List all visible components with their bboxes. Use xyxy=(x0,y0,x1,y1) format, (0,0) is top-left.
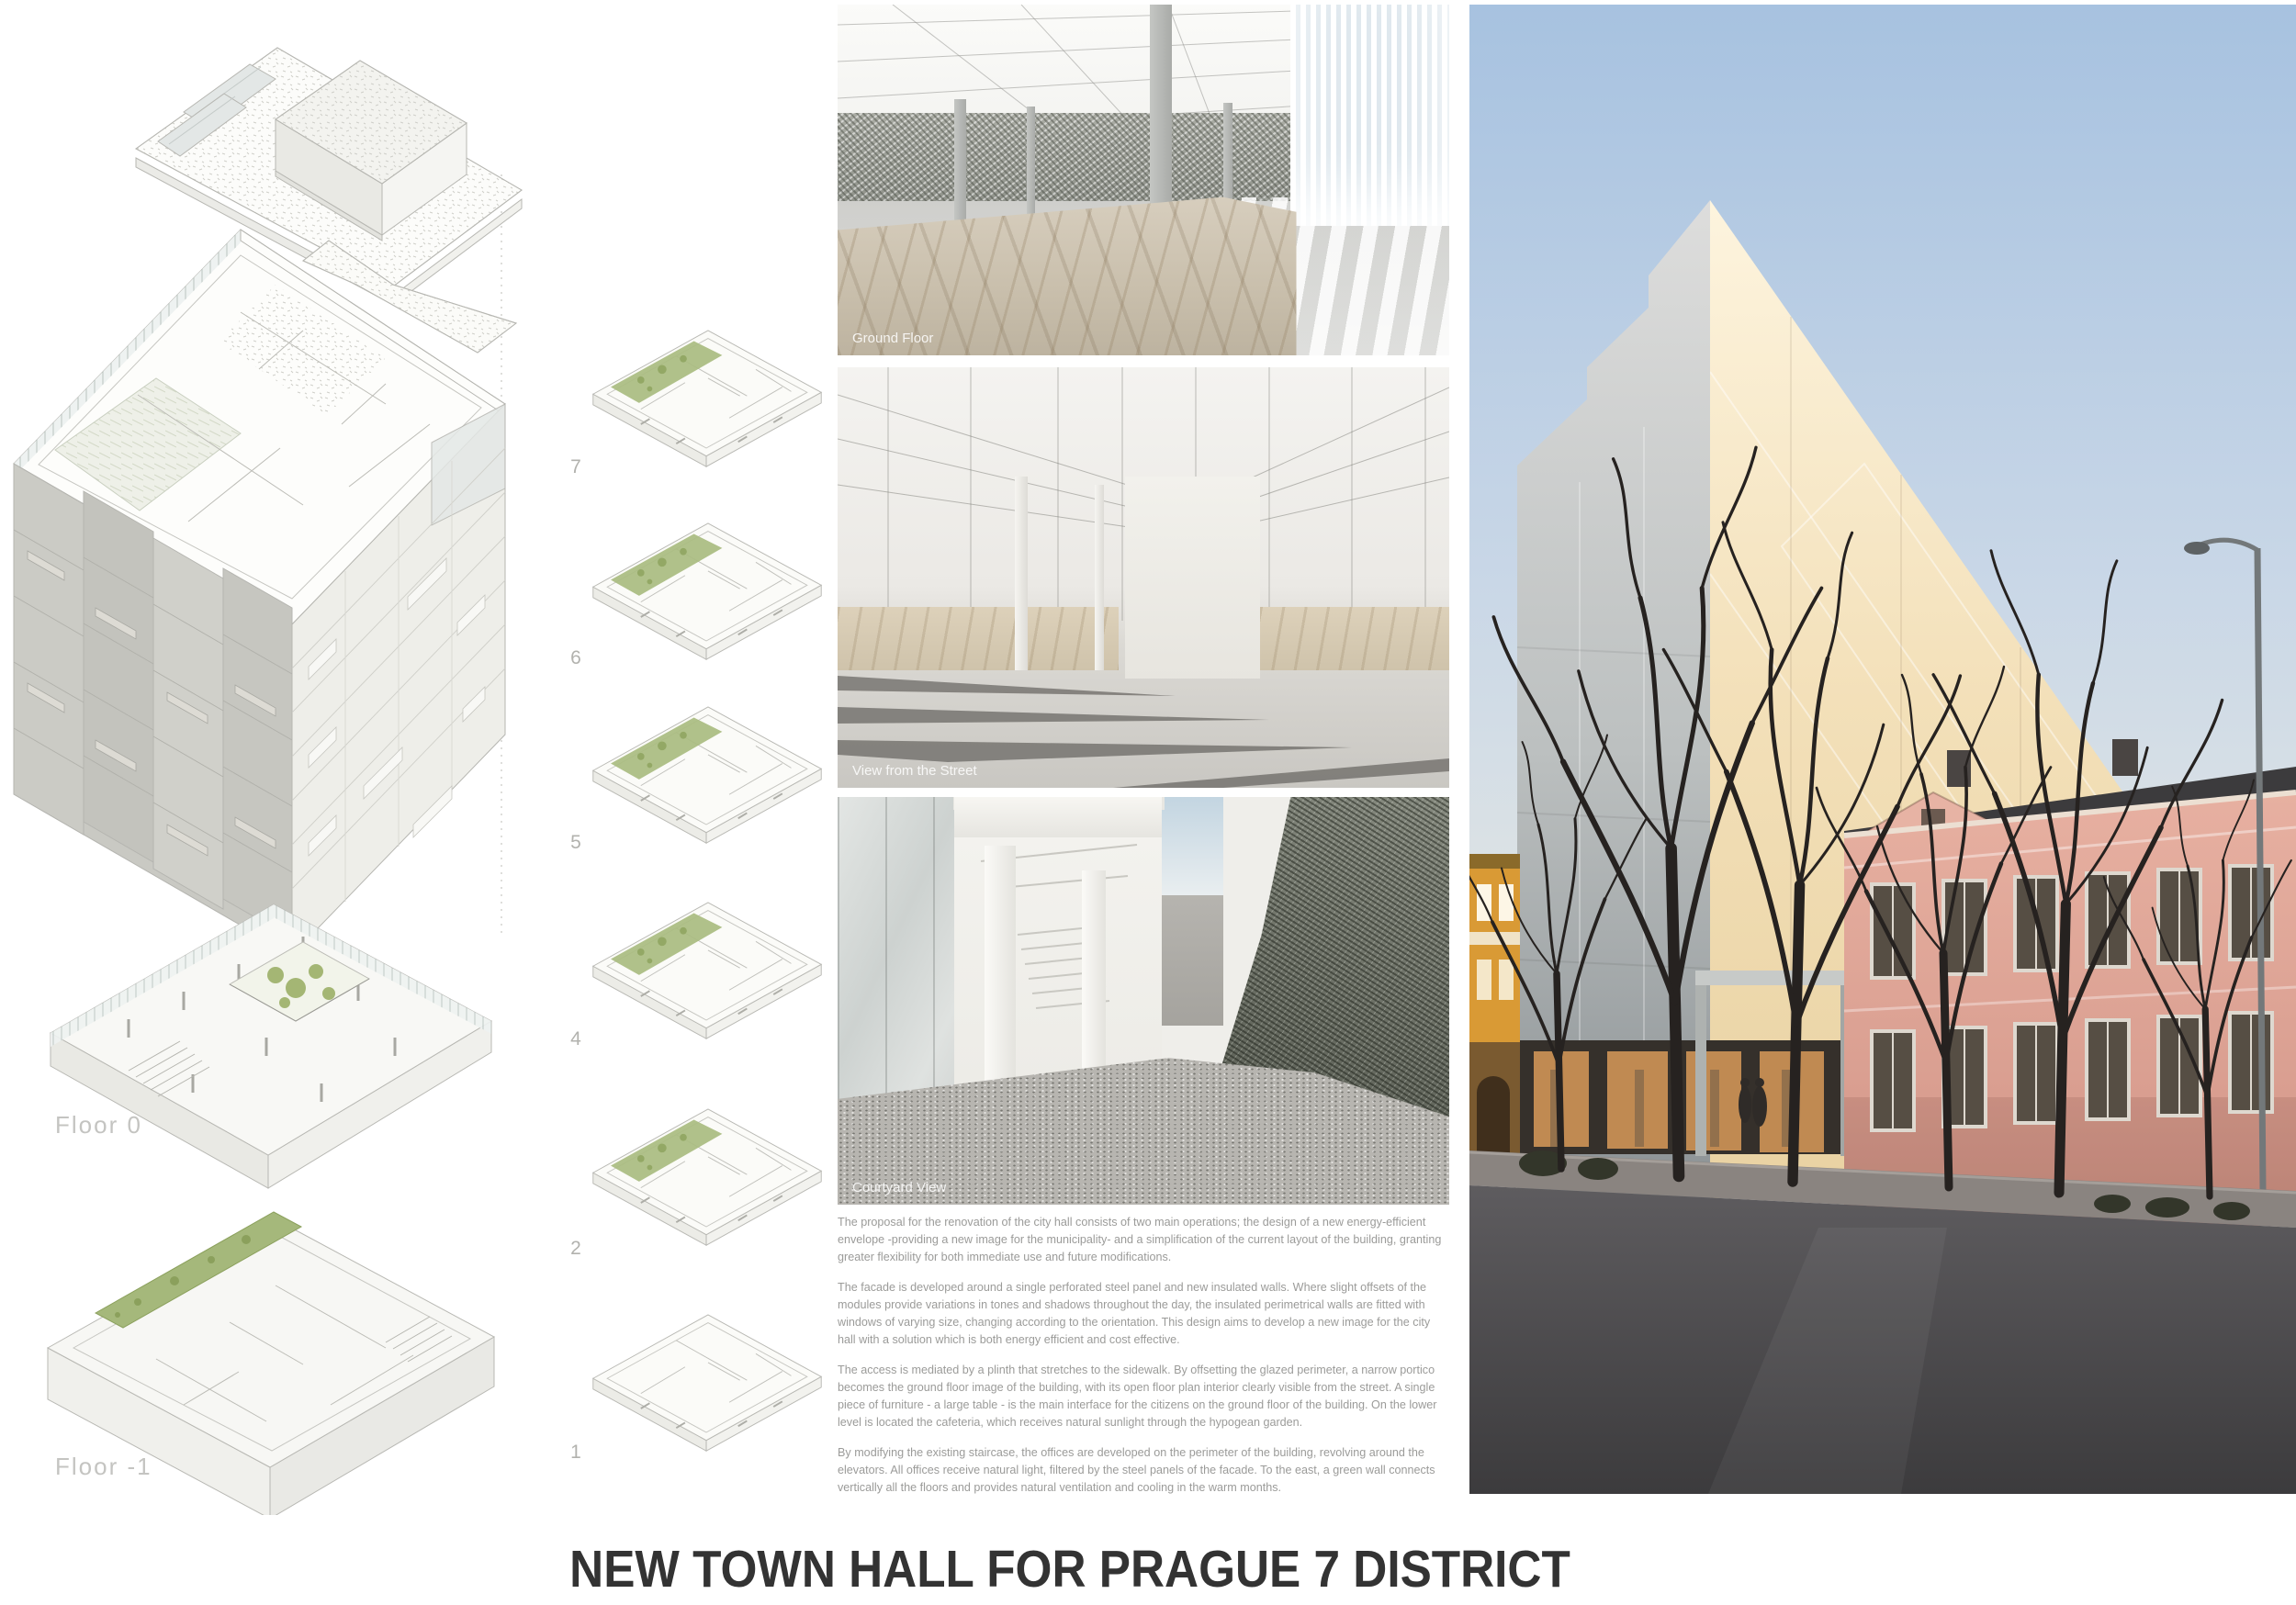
render-caption: Ground Floor xyxy=(852,331,933,346)
description-paragraph: The proposal for the renovation of the c… xyxy=(838,1214,1449,1266)
white-column xyxy=(1015,477,1028,670)
photomontage-svg xyxy=(1469,5,2296,1494)
street-photomontage xyxy=(1469,5,2296,1494)
floor-plan-2 xyxy=(588,1102,827,1256)
floor-plan-7 xyxy=(588,323,827,477)
column xyxy=(954,99,966,226)
project-description: The proposal for the renovation of the c… xyxy=(838,1214,1449,1510)
floor-number-5: 5 xyxy=(562,832,590,854)
floor0-label: Floor 0 xyxy=(55,1111,142,1139)
floor-plan-1 xyxy=(588,1308,827,1462)
render-ground-floor: Ground Floor xyxy=(838,5,1449,355)
exploded-axon-svg xyxy=(0,9,533,1515)
description-paragraph: The access is mediated by a plinth that … xyxy=(838,1362,1449,1431)
overhang-beam xyxy=(954,797,1162,837)
floor-number-4: 4 xyxy=(562,1028,590,1050)
central-corridor xyxy=(1125,477,1260,679)
render-caption: Courtyard View xyxy=(852,1180,946,1195)
floor-number-7: 7 xyxy=(562,456,590,478)
hedge-through-glass xyxy=(838,113,1314,208)
entrance-canopy xyxy=(1695,971,1851,985)
floor-number-1: 1 xyxy=(562,1442,590,1464)
floor-number-2: 2 xyxy=(562,1238,590,1260)
render-street-view: View from the Street xyxy=(838,367,1449,788)
floor-plan-5 xyxy=(588,700,827,854)
board-title: NEW TOWN HALL FOR PRAGUE 7 DISTRICT xyxy=(107,1539,2033,1599)
description-paragraph: By modifying the existing staircase, the… xyxy=(838,1444,1449,1497)
render-courtyard-view: Courtyard View xyxy=(838,797,1449,1205)
description-paragraph: The facade is developed around a single … xyxy=(838,1279,1449,1349)
column xyxy=(1027,107,1035,219)
floor-number-6: 6 xyxy=(562,647,590,669)
render-caption: View from the Street xyxy=(852,763,977,779)
floor0-axon xyxy=(51,904,491,1188)
exploded-axonometric-drawing: Floor 0 Floor -1 xyxy=(0,9,533,1515)
vertical-louvers xyxy=(1290,5,1449,226)
floor-minus1-label: Floor -1 xyxy=(55,1453,152,1481)
presentation-board: Floor 0 Floor -1 xyxy=(0,0,2296,1605)
floor-plan-4 xyxy=(588,895,827,1049)
building-mass-axon xyxy=(14,230,505,955)
white-column xyxy=(1095,485,1104,670)
floor-plan-6 xyxy=(588,516,827,670)
